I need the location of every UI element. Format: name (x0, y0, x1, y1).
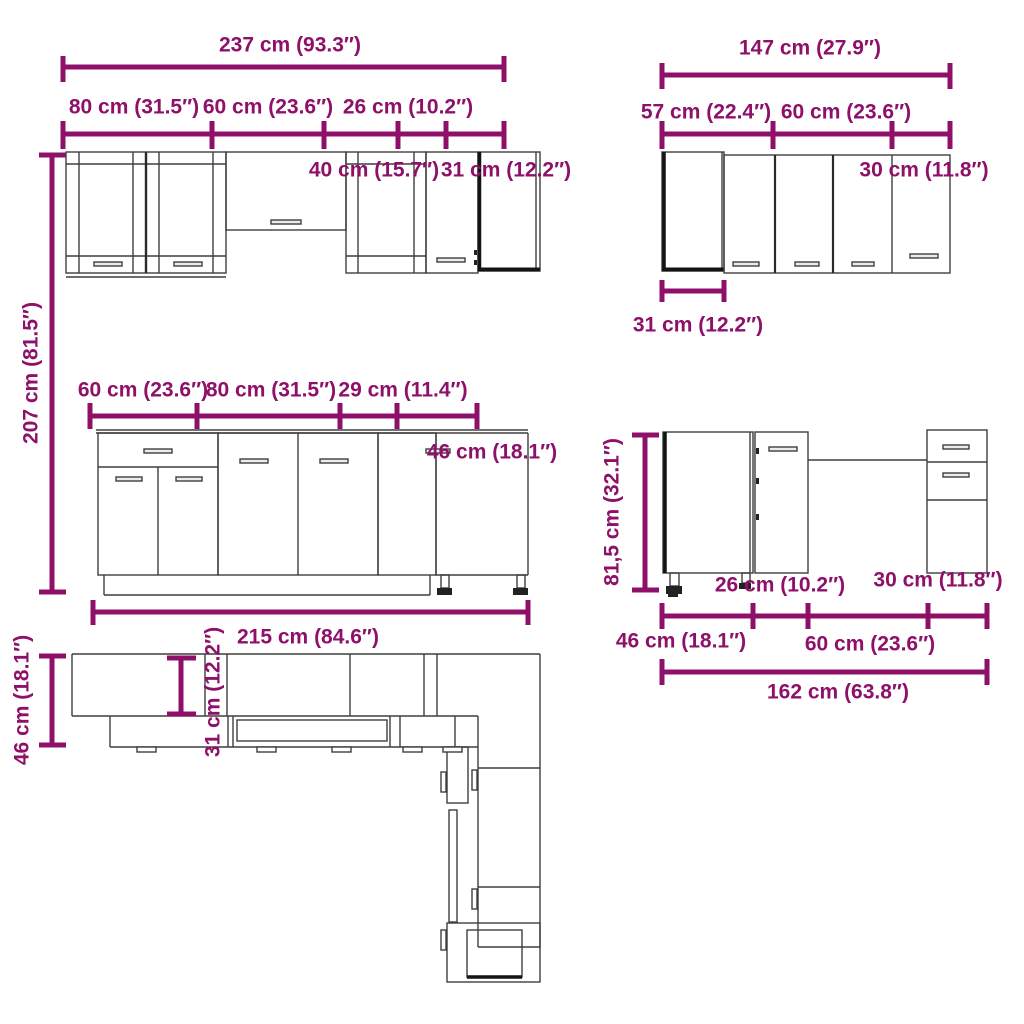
dim-label-base-left-46: 46 cm (18.1″) (427, 442, 557, 463)
dim-label-wall-left-40: 40 cm (15.7″) (309, 160, 439, 181)
dim-label-wall-left-80: 80 cm (31.5″) (69, 97, 199, 118)
dim-label-base-left-80: 80 cm (31.5″) (206, 380, 336, 401)
dim-label-base-right-60: 60 cm (23.6″) (805, 634, 935, 655)
dim-label-base-right-46: 46 cm (18.1″) (616, 631, 746, 652)
dim-label-wall-right-57: 57 cm (22.4″) (641, 102, 771, 123)
floor-plan-top-view (72, 654, 540, 982)
dim-label-total-height: 207 cm (81.5″) (21, 302, 42, 444)
dim-label-plan-base-depth: 46 cm (18.1″) (12, 635, 33, 765)
dim-label-wall-left-26: 26 cm (10.2″) (343, 97, 473, 118)
kitchen-dimensions-diagram: 237 cm (93.3″) 80 cm (31.5″) 60 cm (23.6… (0, 0, 1024, 1024)
dim-label-wall-left-31: 31 cm (12.2″) (441, 160, 571, 181)
dim-label-base-left-total: 215 cm (84.6″) (237, 627, 379, 648)
dim-label-wall-right-60: 60 cm (23.6″) (781, 102, 911, 123)
dim-label-wall-right-30: 30 cm (11.8″) (859, 160, 988, 181)
dim-label-wall-right-corner-depth: 31 cm (12.2″) (633, 315, 763, 336)
dim-label-base-right-26: 26 cm (10.2″) (715, 575, 845, 596)
dim-label-base-left-29: 29 cm (11.4″) (338, 380, 467, 401)
dim-label-plan-wall-depth: 31 cm (12.2″) (203, 627, 224, 757)
dim-label-base-left-60: 60 cm (23.6″) (78, 380, 208, 401)
dim-label-total-width-top-right: 147 cm (27.9″) (739, 38, 881, 59)
cabinet-line-drawing (0, 0, 1024, 1024)
dim-label-base-height: 81,5 cm (32.1″) (602, 438, 623, 586)
dim-label-base-right-total: 162 cm (63.8″) (767, 682, 909, 703)
dim-label-wall-left-60: 60 cm (23.6″) (203, 97, 333, 118)
dim-label-total-width-top-left: 237 cm (93.3″) (219, 35, 361, 56)
dim-label-base-right-30: 30 cm (11.8″) (873, 570, 1002, 591)
